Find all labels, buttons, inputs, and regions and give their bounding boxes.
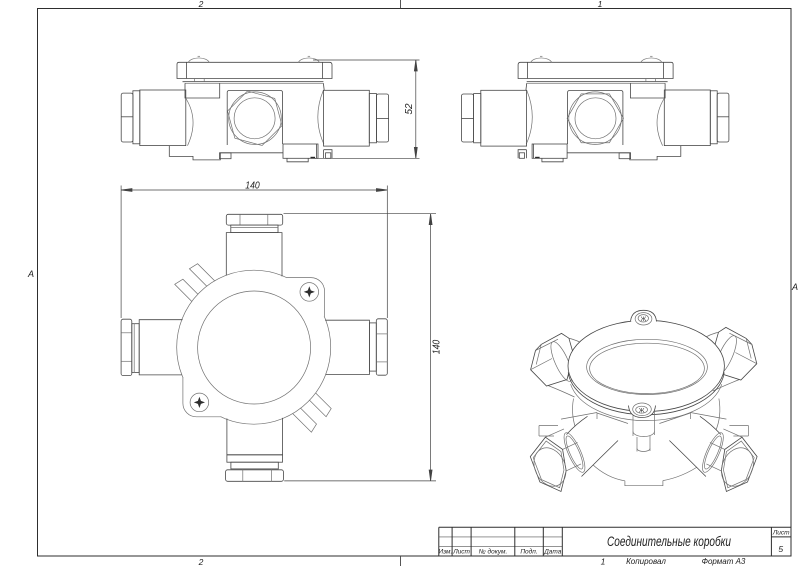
svg-text:Ж: Ж	[641, 317, 647, 323]
svg-text:Подп.: Подп.	[520, 548, 537, 556]
svg-text:Дата: Дата	[543, 549, 562, 556]
svg-text:Копировал: Копировал	[626, 557, 666, 566]
svg-text:А: А	[791, 282, 798, 292]
svg-text:140: 140	[431, 340, 443, 355]
svg-text:Лист: Лист	[772, 530, 790, 537]
svg-text:Ж: Ж	[639, 408, 645, 414]
svg-text:1: 1	[601, 557, 606, 566]
svg-text:Лист: Лист	[452, 549, 470, 556]
svg-text:52: 52	[403, 103, 415, 114]
svg-text:1: 1	[598, 0, 603, 9]
svg-text:Соединительные коробки: Соединительные коробки	[607, 534, 731, 550]
svg-text:2: 2	[198, 557, 204, 566]
svg-text:2: 2	[198, 0, 204, 9]
svg-text:№ докум.: № докум.	[479, 548, 508, 556]
svg-text:Формат А3: Формат А3	[702, 557, 746, 566]
svg-text:140: 140	[245, 179, 260, 191]
svg-text:5: 5	[778, 544, 783, 554]
svg-text:Изм.: Изм.	[438, 549, 452, 556]
svg-text:А: А	[27, 269, 34, 279]
